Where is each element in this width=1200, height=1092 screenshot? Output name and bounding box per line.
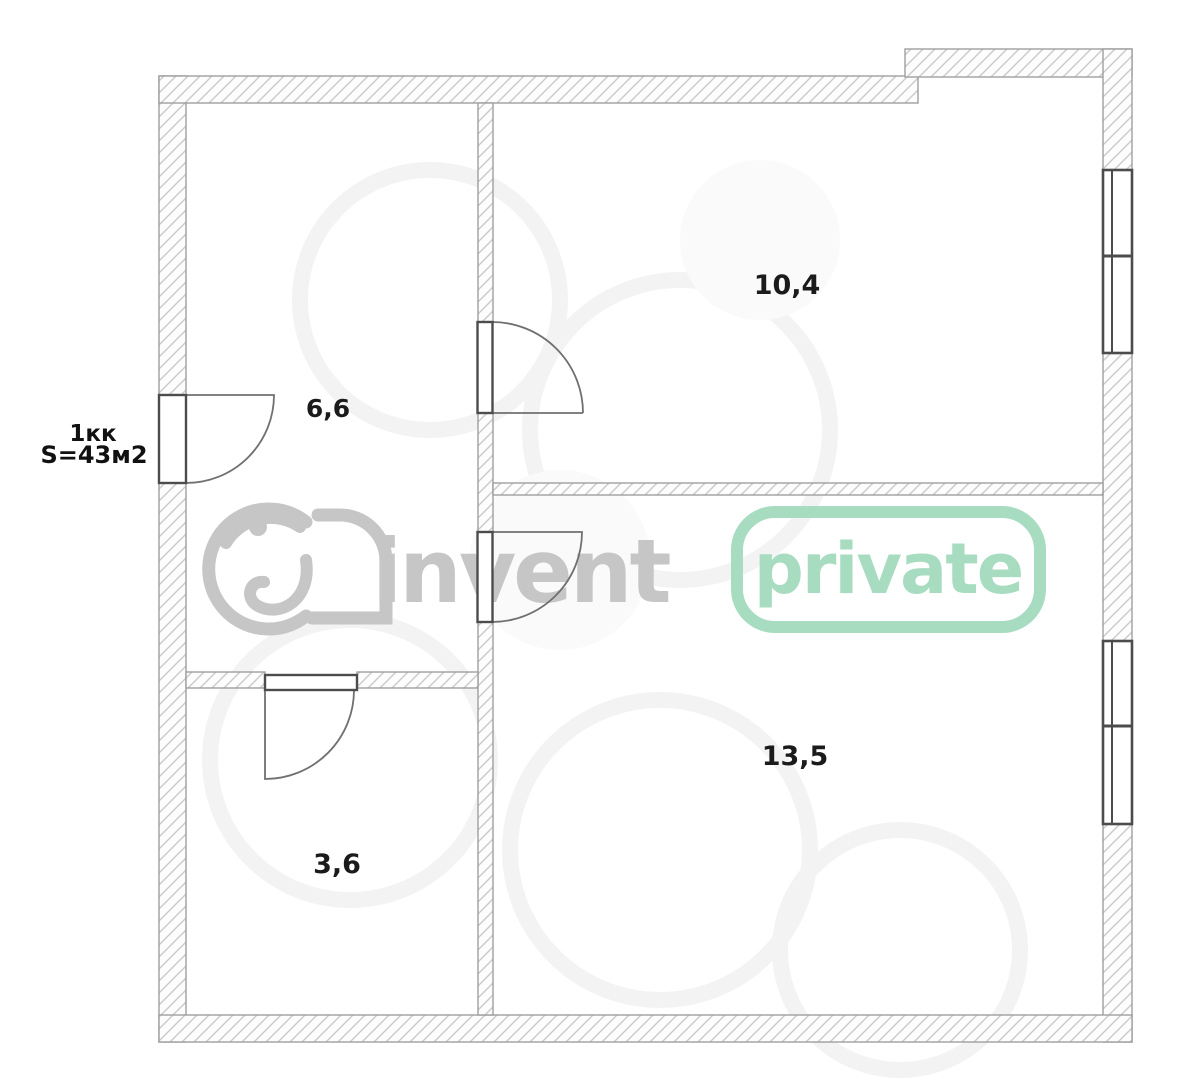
- wall-central-seg3: [478, 622, 493, 1015]
- wall-bottom: [159, 1015, 1132, 1042]
- wall-right-seg3: [1103, 824, 1132, 1042]
- wall-right-seg2: [1103, 353, 1132, 641]
- door-room-3-6-leaf: [265, 675, 357, 690]
- door-central-upper-leaf: [478, 322, 493, 413]
- total-area-label: S=43м2: [40, 441, 147, 469]
- window-bottom-right: [1103, 641, 1132, 824]
- room-label-6-6: 6,6: [306, 394, 350, 423]
- entry-door-leaf: [159, 395, 186, 483]
- floorplan-svg: invent private: [0, 0, 1200, 1092]
- wall-top-upper-step: [905, 49, 1132, 77]
- wall-central-seg2: [478, 413, 493, 532]
- wall-right-divider: [493, 483, 1103, 495]
- door-central-lower-leaf: [478, 532, 493, 622]
- wall-left-divider-seg1: [186, 672, 265, 688]
- room-label-13-5: 13,5: [762, 741, 829, 772]
- wall-left-upper: [159, 76, 186, 395]
- wall-central-seg1: [478, 103, 493, 322]
- room-6-6-area: [186, 103, 478, 672]
- floorplan-page: invent private: [0, 0, 1200, 1092]
- wall-left-lower: [159, 483, 186, 1042]
- wall-right-seg1: [1103, 49, 1132, 170]
- wall-top-main: [159, 76, 918, 103]
- room-label-10-4: 10,4: [754, 270, 821, 301]
- room-label-3-6: 3,6: [313, 849, 361, 880]
- wall-left-divider-seg2: [357, 672, 478, 688]
- window-top-right: [1103, 170, 1132, 353]
